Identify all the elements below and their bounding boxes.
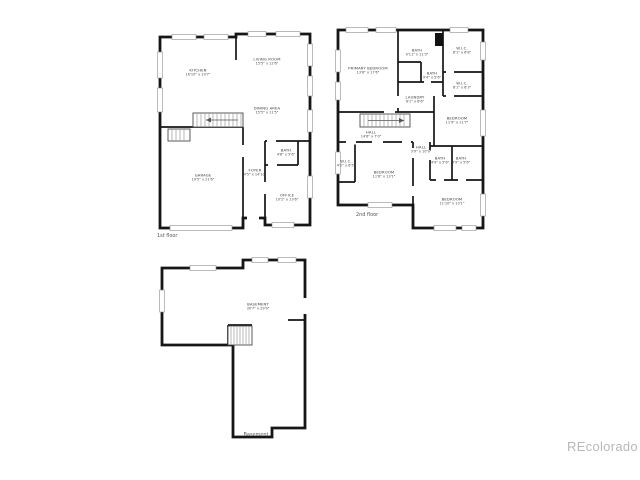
first-floor-door-gaps (241, 139, 278, 221)
basement-walls (162, 260, 305, 437)
basement-door-gaps (303, 298, 308, 314)
caption-second-floor: 2nd floor (356, 212, 378, 218)
basement-windows (160, 258, 297, 313)
second-floor-door-gaps (346, 70, 466, 197)
basement-stairs (228, 326, 252, 345)
caption-first-floor: 1st floor (157, 233, 177, 239)
caption-basement: Basement (223, 432, 289, 438)
second-floor-stairs (360, 114, 410, 127)
second-floor-windows (336, 28, 486, 231)
watermark-recolorado: REcolorado (567, 439, 638, 454)
second-floor-walls (338, 30, 483, 228)
floor-plan-drawing (0, 0, 640, 480)
chimney-shaft (435, 33, 443, 46)
floor-plan-page: KITCHEN 16'10" x 19'7" LIVING ROOM 15'5"… (0, 0, 640, 480)
garage-door (170, 226, 232, 231)
